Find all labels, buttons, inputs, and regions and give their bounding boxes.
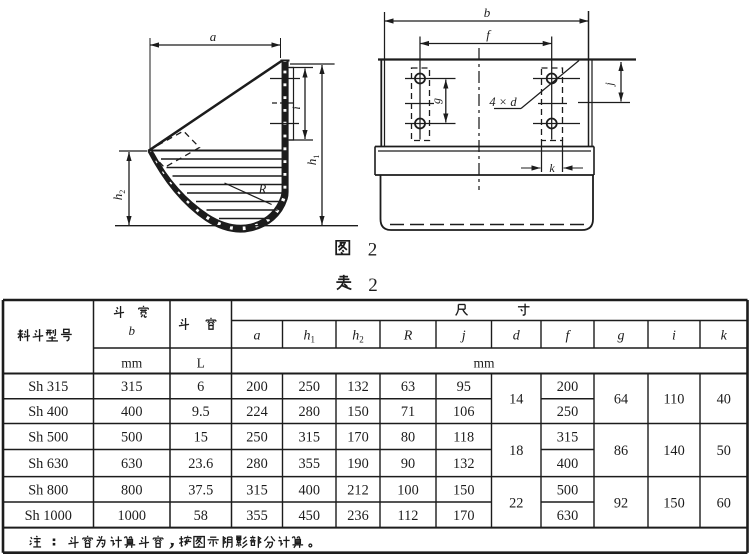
svg-text:a: a [254,329,261,344]
svg-text:400: 400 [121,404,142,420]
svg-text:630: 630 [557,508,578,524]
svg-text:Sh 500: Sh 500 [28,430,68,446]
svg-text:800: 800 [121,482,142,498]
svg-text:i: i [672,329,676,344]
svg-text:j: j [602,82,616,88]
svg-text:2: 2 [368,240,378,261]
svg-text:f: f [486,27,492,42]
svg-text:d: d [513,329,521,344]
svg-text:224: 224 [246,404,267,420]
svg-text:h1: h1 [304,155,321,166]
svg-text:h2: h2 [352,329,364,345]
svg-text:200: 200 [557,379,578,395]
svg-text:500: 500 [557,482,578,498]
svg-text:212: 212 [347,482,368,498]
svg-text:315: 315 [121,379,142,395]
svg-text:200: 200 [246,379,267,395]
svg-text:h2: h2 [110,190,127,201]
svg-text:18: 18 [509,443,523,459]
svg-text:g: g [429,98,443,104]
svg-text:a: a [210,29,217,44]
svg-text:22: 22 [509,495,523,511]
svg-text:110: 110 [664,392,685,408]
svg-text:Sh 1000: Sh 1000 [25,508,72,524]
svg-text:280: 280 [246,456,267,472]
svg-text:9.5: 9.5 [192,404,210,420]
svg-text:355: 355 [299,456,320,472]
svg-text:64: 64 [614,392,628,408]
svg-text:170: 170 [453,508,474,524]
svg-text:b: b [129,323,136,338]
svg-text:i: i [289,106,303,109]
svg-text:Sh 400: Sh 400 [28,404,68,420]
svg-text:f: f [566,329,572,344]
svg-text:450: 450 [299,508,320,524]
svg-text:355: 355 [246,508,267,524]
svg-text:400: 400 [299,482,320,498]
svg-text:630: 630 [121,456,142,472]
svg-text:58: 58 [194,508,208,524]
svg-text:315: 315 [246,482,267,498]
svg-text:150: 150 [663,495,684,511]
svg-text:50: 50 [717,443,731,459]
svg-text:2: 2 [368,275,378,296]
svg-text:mm: mm [473,356,495,371]
svg-text:k: k [721,329,728,344]
svg-text:500: 500 [121,430,142,446]
svg-text:Sh 800: Sh 800 [28,482,68,498]
svg-text:b: b [484,5,491,20]
svg-text:80: 80 [401,430,415,446]
svg-text:95: 95 [457,379,471,395]
svg-text:315: 315 [299,430,320,446]
svg-text:118: 118 [453,430,474,446]
svg-text:106: 106 [453,404,474,420]
svg-text:60: 60 [717,495,731,511]
svg-text:R: R [403,329,413,344]
svg-text:190: 190 [347,456,368,472]
svg-text:132: 132 [347,379,368,395]
svg-text:250: 250 [299,379,320,395]
svg-text:14: 14 [509,392,523,408]
svg-text:mm: mm [121,356,143,371]
svg-text:170: 170 [347,430,368,446]
svg-text:250: 250 [557,404,578,420]
svg-text:71: 71 [401,404,415,420]
svg-text:92: 92 [614,495,628,511]
svg-text:15: 15 [194,430,208,446]
svg-text:R: R [258,182,267,196]
svg-text:63: 63 [401,379,415,395]
svg-text:4 × d: 4 × d [489,95,517,109]
svg-text:280: 280 [299,404,320,420]
svg-text:37.5: 37.5 [188,482,213,498]
svg-text:150: 150 [347,404,368,420]
svg-text:6: 6 [197,379,204,395]
svg-text:Sh 630: Sh 630 [28,456,68,472]
svg-text:236: 236 [347,508,368,524]
svg-text:250: 250 [246,430,267,446]
svg-text:1000: 1000 [117,508,146,524]
svg-text:k: k [549,161,555,175]
svg-text:j: j [460,329,466,344]
svg-text:150: 150 [453,482,474,498]
svg-text:315: 315 [557,430,578,446]
svg-text:Sh 315: Sh 315 [28,379,68,395]
svg-text:140: 140 [663,443,684,459]
svg-text:112: 112 [398,508,419,524]
svg-text:90: 90 [401,456,415,472]
svg-text:132: 132 [453,456,474,472]
svg-text:86: 86 [614,443,628,459]
svg-text:L: L [197,356,205,371]
svg-text:g: g [618,329,625,344]
svg-text:h1: h1 [304,329,316,345]
svg-text:100: 100 [397,482,418,498]
svg-text:23.6: 23.6 [188,456,213,472]
svg-text:40: 40 [717,392,731,408]
svg-text:400: 400 [557,456,578,472]
